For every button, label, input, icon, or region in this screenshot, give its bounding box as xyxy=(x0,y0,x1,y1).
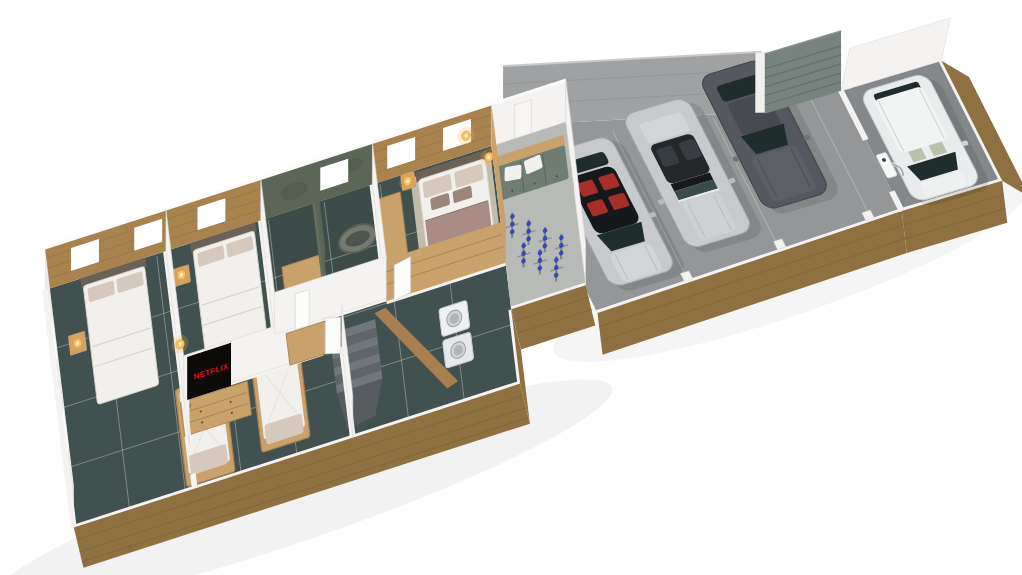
boot-room-door xyxy=(511,100,536,139)
floorplan-render: NETFLIX xyxy=(0,0,1022,575)
floorplan-canvas: NETFLIX xyxy=(0,0,1022,575)
